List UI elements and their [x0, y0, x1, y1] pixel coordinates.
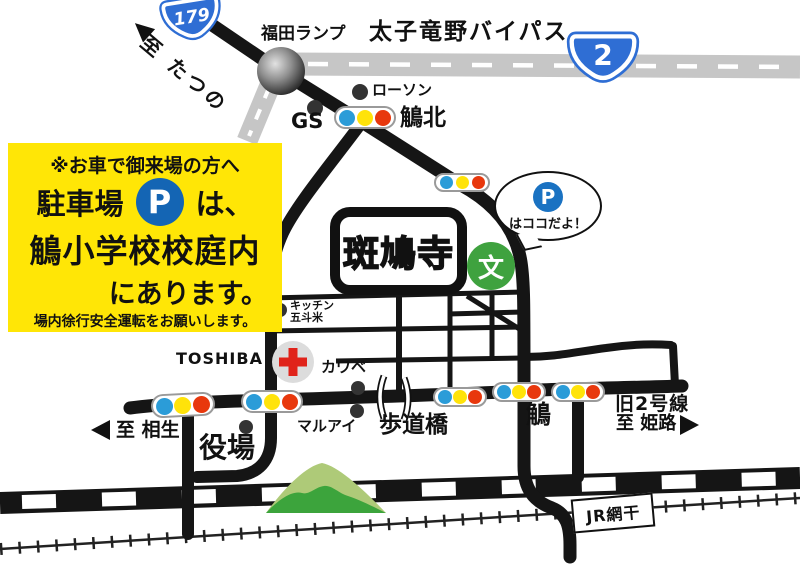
label-kitchen: キッチン 五斗米 [290, 300, 334, 323]
arrow-to-himeji [680, 415, 699, 435]
lawson-dot [352, 84, 368, 100]
kawabe-dot [351, 381, 365, 395]
label-ikaruga-kita: 鵤北 [400, 106, 446, 130]
label-town-office: 役場 [199, 433, 255, 462]
hospital-icon [272, 341, 314, 383]
signal-pedestrian-bridge [433, 387, 487, 407]
label-fukuda-ramp: 福田ランプ [261, 26, 346, 44]
notice-location: 鵤小学校校庭内 [29, 226, 260, 272]
parking-notice-box: ※お車で御来場の方へ 駐車場 P は、 鵤小学校校庭内 にあります。 場内徐行安… [8, 143, 282, 332]
notice-location2: にあります。 [109, 272, 278, 311]
arrow-to-aioi [91, 420, 110, 440]
svg-text:2: 2 [593, 40, 613, 73]
label-to-himeji: 至 姫路 [616, 415, 676, 434]
maruai-dot [350, 404, 364, 418]
notice-parking-line: 駐車場 P は、 [36, 178, 253, 226]
label-bypass: 太子竜野バイパス [369, 20, 569, 44]
label-old-route2: 旧2号線 [615, 395, 689, 415]
interchange-sphere [257, 47, 305, 95]
signal-town-office [241, 390, 303, 413]
notice-caution: 場内徐行安全運転をお願いします。 [34, 311, 257, 331]
road-east-connector [673, 346, 675, 385]
signal-ikaruga-kita [334, 106, 396, 129]
parking-icon-small: P [533, 182, 563, 212]
signal-temple-north [434, 173, 490, 192]
route-179-shield: 179 [163, 0, 221, 40]
label-pedestrian-bridge: 歩道橋 [379, 413, 448, 437]
label-ikaruga: 鵤 [526, 402, 551, 428]
school-mark-icon: 文 [467, 242, 515, 290]
access-map: 179 2 ※お車で御来場の方へ 駐車場 P は、 鵤小学校校庭内 にあります。… [0, 0, 800, 566]
label-maruai: マルアイ [297, 419, 356, 435]
label-toshiba: TOSHIBA [176, 351, 263, 368]
parking-icon: P [136, 178, 184, 226]
signal-west [150, 391, 215, 418]
parking-balloon: P はココだよ！ [494, 171, 602, 241]
signal-east [551, 382, 605, 402]
label-kawabe: カワベ [321, 360, 366, 376]
temple-box: 斑鳩寺 [330, 207, 467, 295]
road-east-branch [524, 344, 671, 357]
jr-aboshi-station: JR網干 [571, 492, 656, 533]
notice-heading: ※お車で御来場の方へ [50, 151, 239, 178]
label-gs: GS [291, 110, 323, 132]
label-to-aioi: 至 相生 [116, 421, 180, 441]
label-lawson: ローソン [372, 83, 432, 99]
signal-ikaruga [492, 382, 546, 402]
route-2-shield: 2 [572, 36, 635, 78]
